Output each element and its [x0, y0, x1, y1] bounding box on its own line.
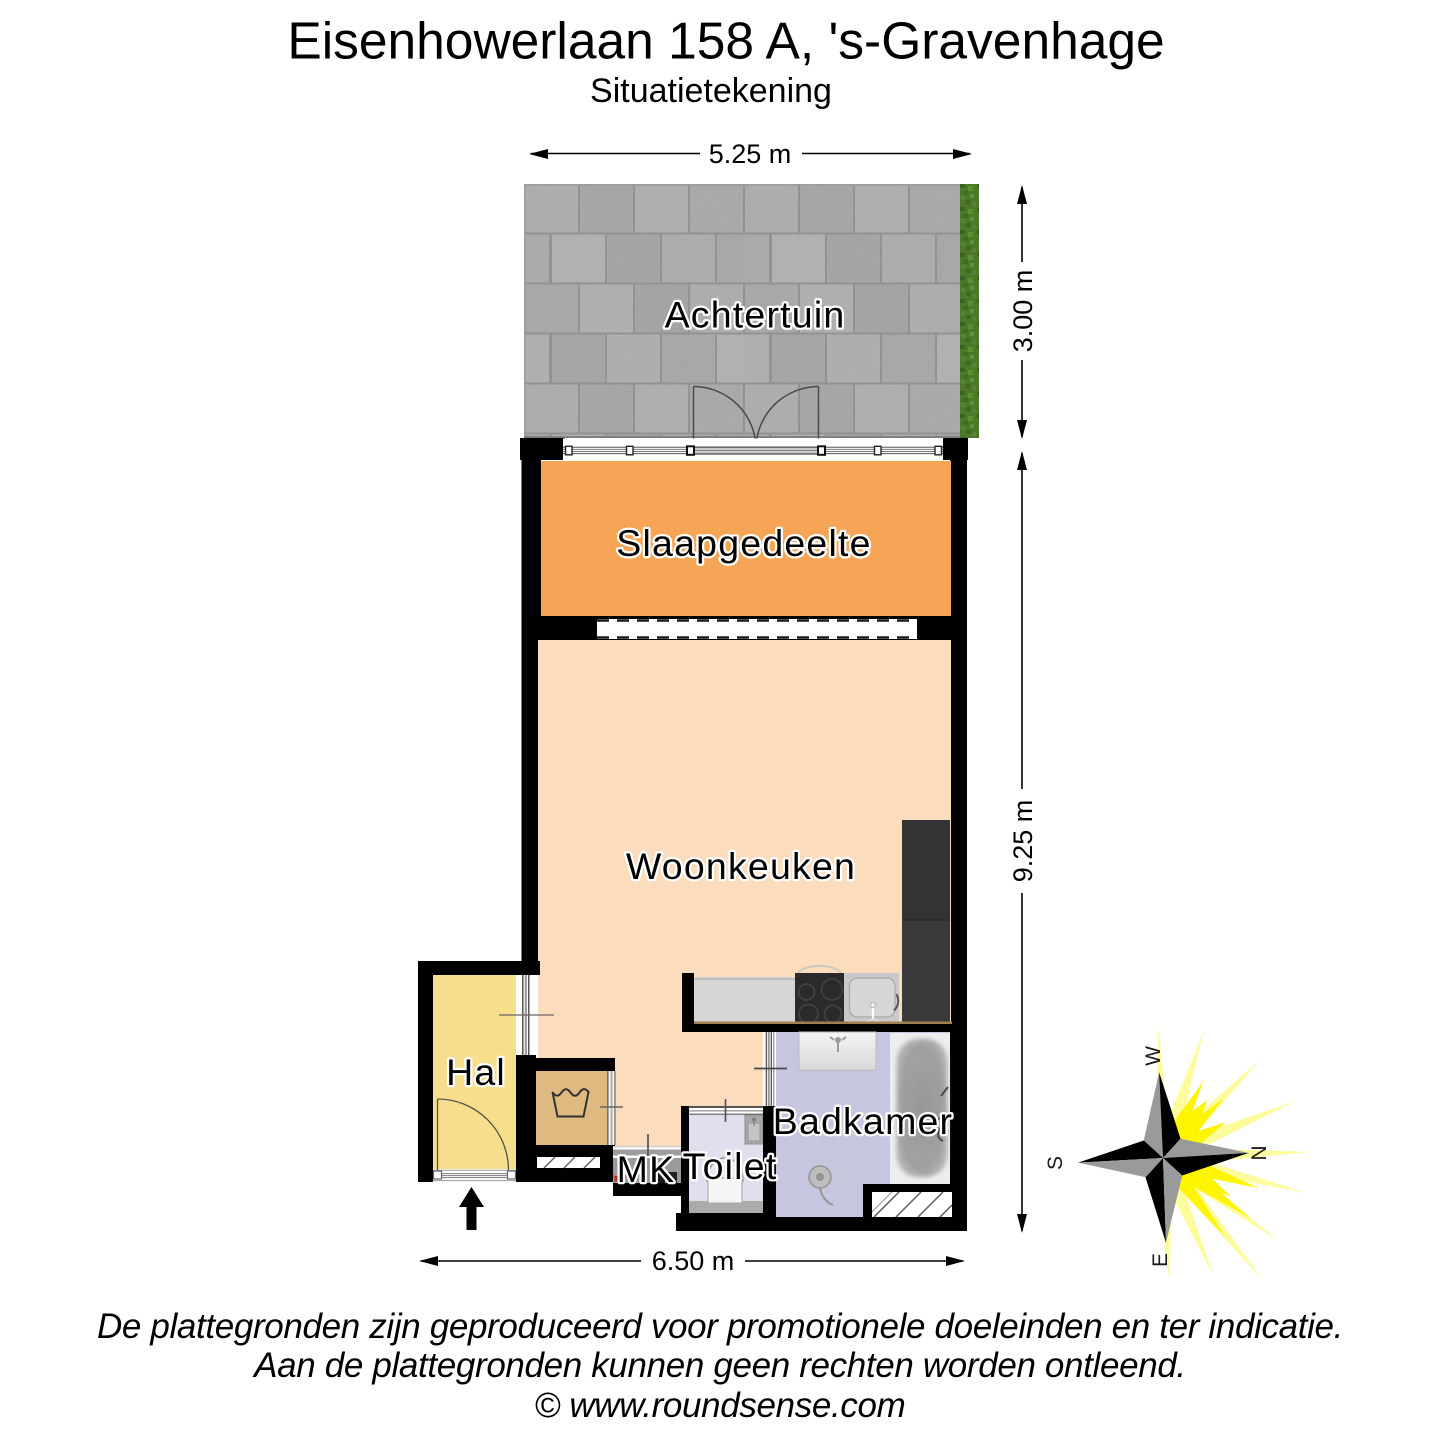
svg-text:Aan de plattegronden kunnen ge: Aan de plattegronden kunnen geen rechten…: [252, 1346, 1186, 1385]
svg-text:© www.roundsense.com: © www.roundsense.com: [535, 1386, 906, 1425]
svg-text:Situatietekening: Situatietekening: [590, 72, 832, 110]
svg-text:Achtertuin: Achtertuin: [665, 294, 846, 336]
svg-text:W: W: [1142, 1046, 1165, 1066]
svg-text:5.25 m: 5.25 m: [709, 139, 792, 169]
svg-text:E: E: [1149, 1253, 1172, 1267]
svg-text:De plattegronden zijn geproduc: De plattegronden zijn geproduceerd voor …: [97, 1307, 1343, 1346]
svg-text:Badkamer: Badkamer: [773, 1100, 954, 1142]
svg-text:Woonkeuken: Woonkeuken: [626, 845, 856, 887]
svg-text:Toilet: Toilet: [683, 1145, 778, 1187]
svg-text:Hal: Hal: [446, 1051, 506, 1093]
svg-text:Slaapgedeelte: Slaapgedeelte: [616, 522, 871, 564]
svg-text:9.25 m: 9.25 m: [1008, 800, 1038, 883]
svg-text:N: N: [1248, 1145, 1271, 1160]
svg-text:Eisenhowerlaan 158 A, 's-Grave: Eisenhowerlaan 158 A, 's-Gravenhage: [287, 12, 1164, 70]
svg-text:S: S: [1044, 1156, 1067, 1170]
svg-text:3.00 m: 3.00 m: [1008, 270, 1038, 353]
svg-text:MK: MK: [617, 1148, 676, 1190]
svg-text:6.50 m: 6.50 m: [652, 1246, 735, 1276]
